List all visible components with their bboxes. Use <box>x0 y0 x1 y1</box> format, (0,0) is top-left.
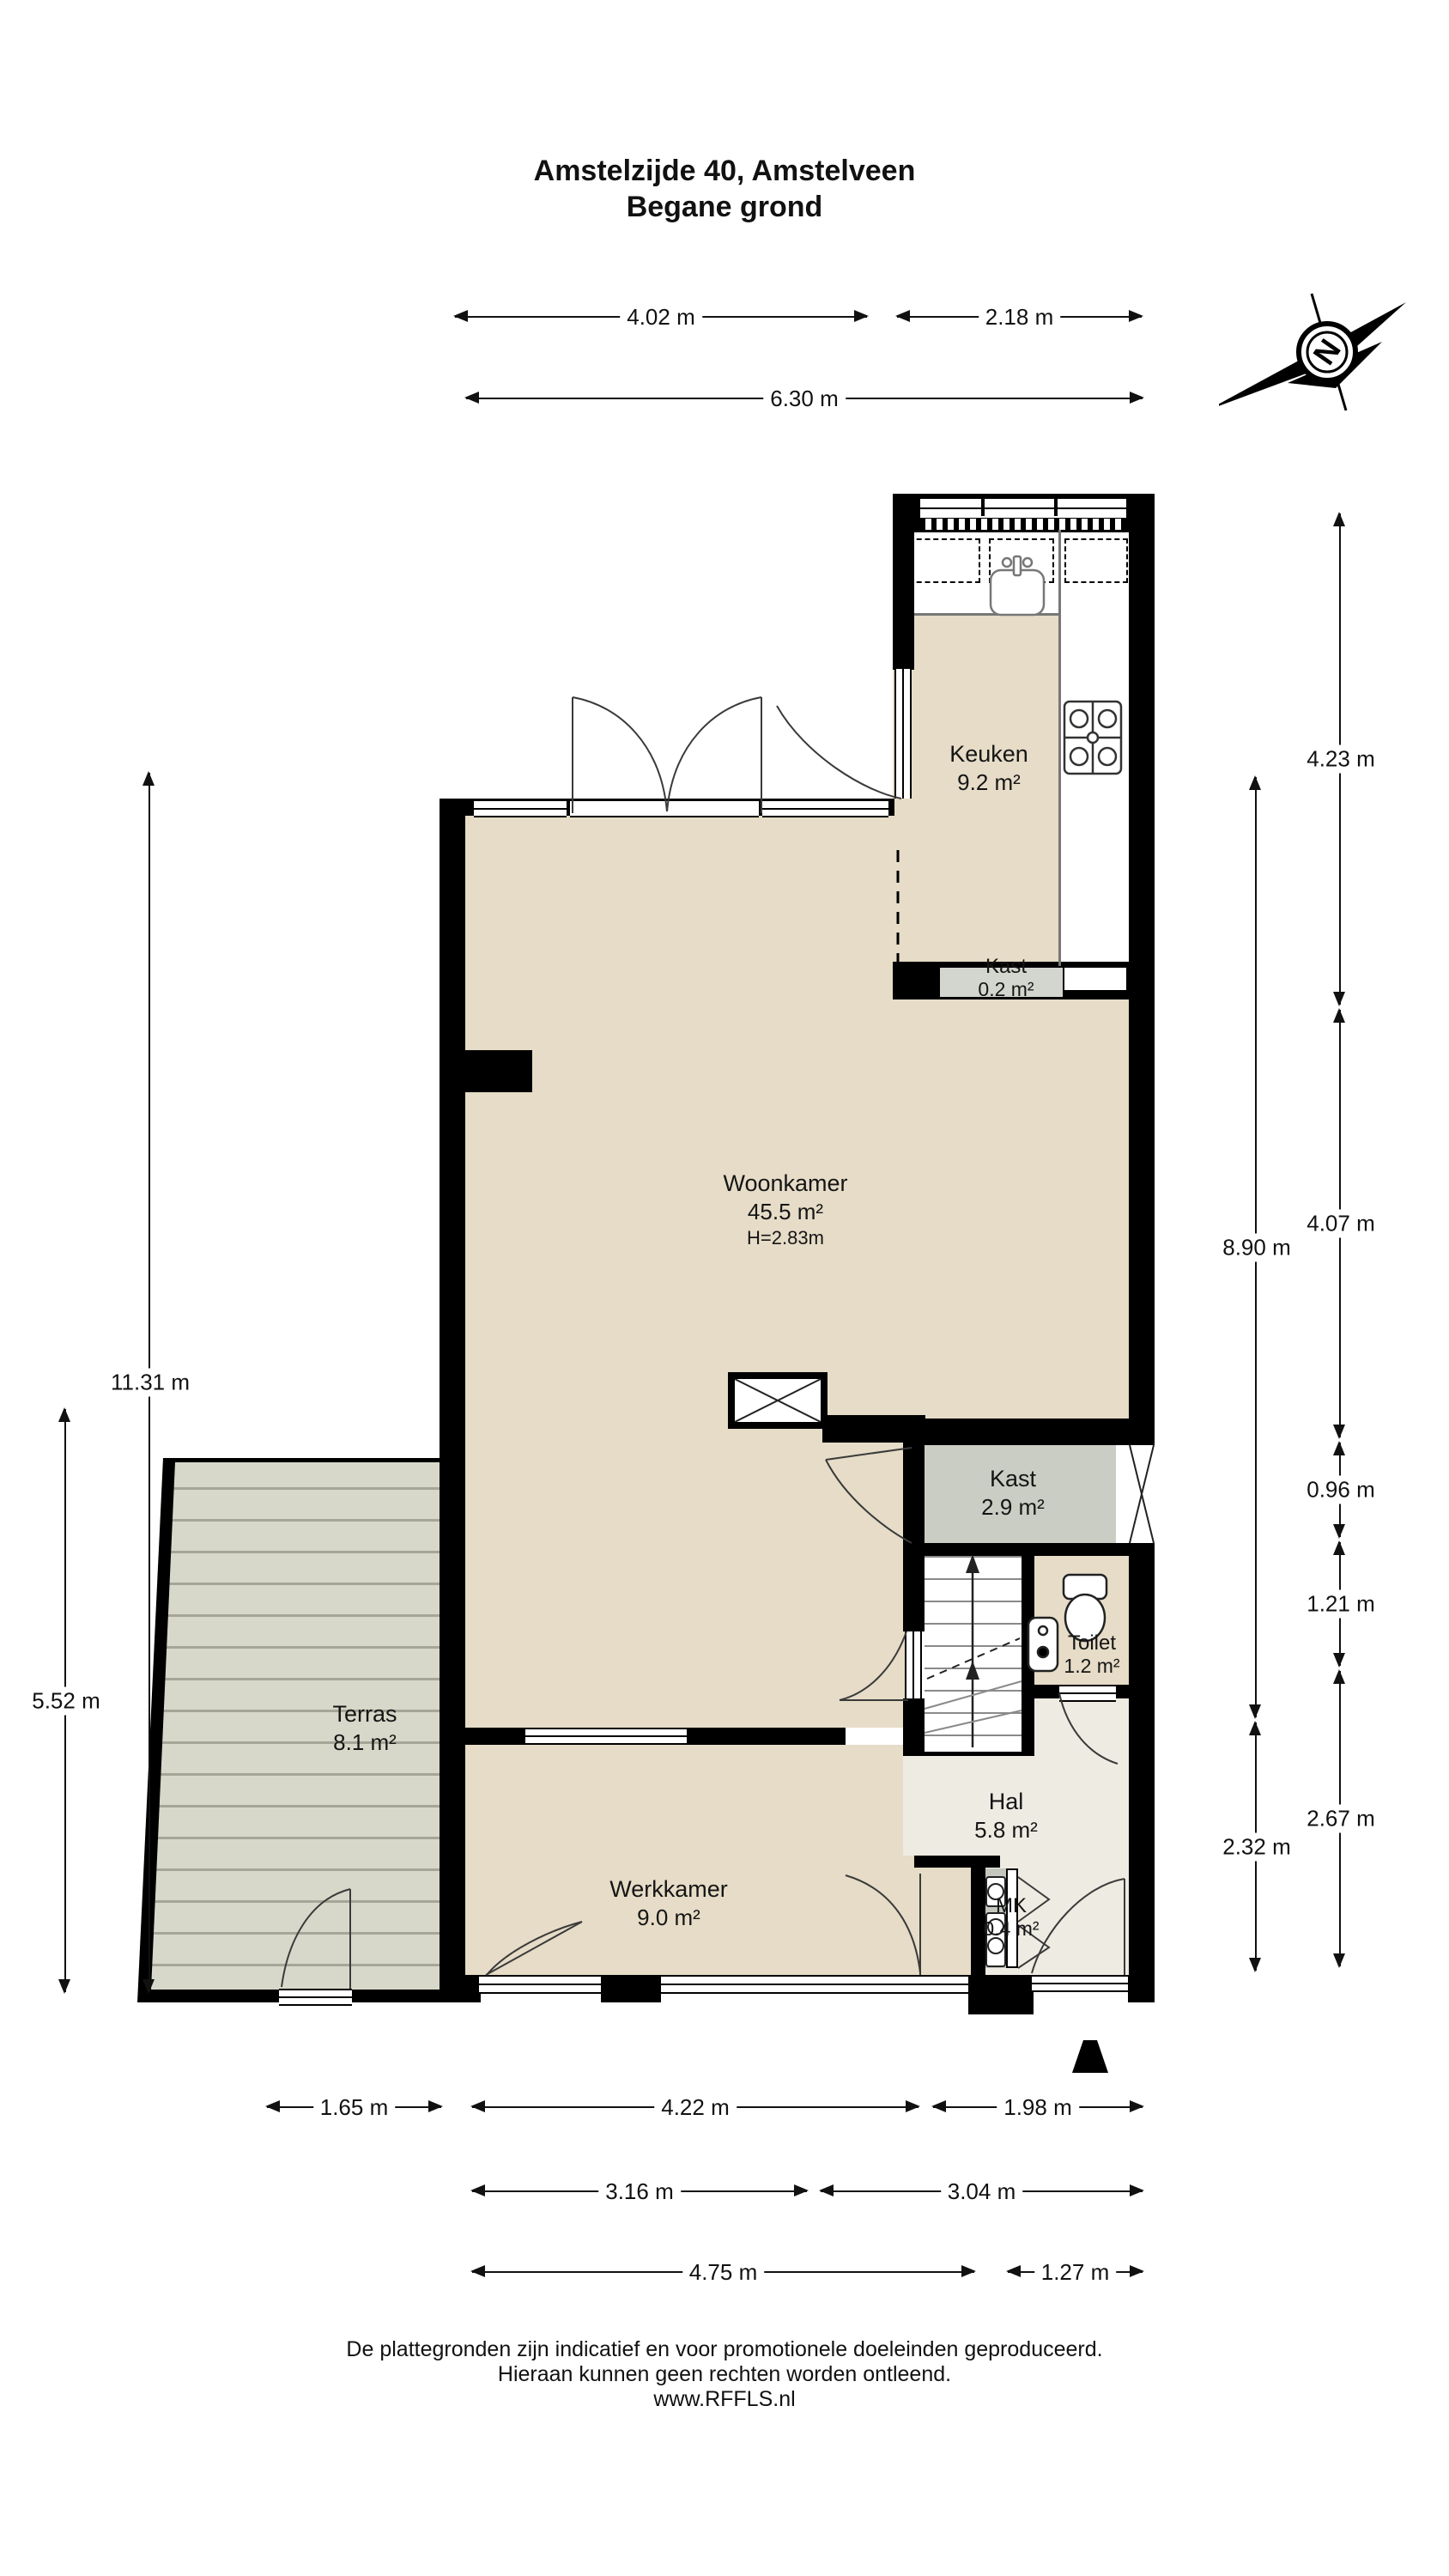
wall-kast-bottom <box>903 1543 1155 1556</box>
terras-area: 8.1 m² <box>332 1728 397 1757</box>
werkkamer-interior-window <box>525 1728 687 1745</box>
kast-name: Kast <box>981 1465 1045 1493</box>
wall-stairs-left-lower <box>903 1698 925 1756</box>
wall-toilet-bottom-left <box>1022 1685 1059 1698</box>
disclaimer-website: www.RFFLS.nl <box>0 2387 1449 2412</box>
compass: N <box>1219 275 1425 438</box>
wall-bottom-pier <box>601 1975 661 2002</box>
title-address: Amstelzijde 40, Amstelveen <box>0 153 1449 189</box>
staircase <box>925 1556 1022 1753</box>
kitchen-top-window <box>920 497 1126 519</box>
dim-right-0-96: 0.96 m <box>1339 1443 1341 1537</box>
dim-right-1-21: 1.21 m <box>1339 1542 1341 1666</box>
wall-left <box>440 799 465 2002</box>
keuken-name: Keuken <box>949 740 1028 769</box>
disclaimer-line-1: De plattegronden zijn indicatief en voor… <box>0 2337 1449 2362</box>
counter-right-edge <box>1058 530 1061 966</box>
stairs-bottom-edge <box>925 1752 1022 1756</box>
wall-stairs-left-upper <box>903 1443 925 1631</box>
upper-cabinet-3 <box>1064 538 1128 583</box>
floor-woonkamer-left <box>465 813 893 1728</box>
page-title: Amstelzijde 40, Amstelveen Begane grond <box>0 153 1449 225</box>
stove-icon <box>1064 702 1121 774</box>
dim-bottom-4-75: 4.75 m <box>472 2271 974 2273</box>
kast-klein-area: 0.2 m² <box>978 978 1034 1001</box>
mk-area: 0.4 m² <box>983 1917 1039 1941</box>
room-label-woonkamer: Woonkamer 45.5 m² H=2.83m <box>723 1170 847 1250</box>
dim-bottom-1-27: 1.27 m <box>1008 2271 1143 2273</box>
dim-left-11-31: 11.31 m <box>149 773 150 1992</box>
dim-bottom-4-22: 4.22 m <box>472 2106 919 2108</box>
floorplan-sheet: Amstelzijde 40, Amstelveen Begane grond <box>0 0 1449 2576</box>
floor-hal-toilet-front <box>1034 1698 1129 1756</box>
room-label-toilet: Toilet 1.2 m² <box>1064 1631 1119 1678</box>
kitchen-window-mullion-2 <box>1054 497 1058 516</box>
wall-bottom-right-corner <box>1128 1975 1155 2002</box>
duct-glass <box>735 1379 821 1422</box>
floor-werkkamer <box>465 1745 971 1975</box>
upper-cabinet-1 <box>908 538 980 583</box>
room-label-hal: Hal 5.8 m² <box>974 1788 1038 1844</box>
entrance-marker <box>1072 2040 1108 2073</box>
upper-cabinet-2 <box>989 538 1054 583</box>
dim-right-4-23: 4.23 m <box>1339 513 1341 1005</box>
dim-left-5-52: 5.52 m <box>64 1409 66 1992</box>
dim-bottom-1-98: 1.98 m <box>933 2106 1143 2108</box>
dim-top-6-30: 6.30 m <box>466 398 1143 399</box>
counter-front-edge <box>914 613 1060 616</box>
wall-werkkamer-top-right <box>687 1728 846 1745</box>
hal-name: Hal <box>974 1788 1038 1816</box>
room-label-mk: MK 0.4 m² <box>983 1894 1039 1941</box>
hal-area: 5.8 m² <box>974 1816 1038 1844</box>
wall-frontdoor-block <box>968 1975 1034 2014</box>
french-doors <box>573 697 761 813</box>
dim-right-8-90: 8.90 m <box>1255 777 1257 1717</box>
room-label-terras: Terras 8.1 m² <box>332 1700 397 1757</box>
floor-hal-under-stairs <box>903 1756 985 1856</box>
dim-top-4-02: 4.02 m <box>455 316 867 318</box>
woonkamer-name: Woonkamer <box>723 1170 847 1198</box>
title-floor: Begane grond <box>0 189 1449 225</box>
room-label-kast-klein: Kast 0.2 m² <box>978 955 1034 1001</box>
terras-name: Terras <box>332 1700 397 1728</box>
floor-woonkamer-right <box>893 999 1129 1419</box>
werkkamer-window-left <box>479 1975 601 1994</box>
compass-needle <box>1219 294 1406 410</box>
disclaimer-line-2: Hieraan kunnen geen rechten worden ontle… <box>0 2362 1449 2387</box>
wall-bottom-left-corner <box>440 1975 481 2002</box>
mk-name: MK <box>983 1894 1039 1917</box>
dim-bottom-3-16: 3.16 m <box>472 2190 807 2192</box>
wall-werkkamer-top-left <box>465 1728 525 1745</box>
woonkamer-height: H=2.83m <box>723 1226 847 1250</box>
kast-area: 2.9 m² <box>981 1493 1045 1522</box>
dim-bottom-3-04: 3.04 m <box>821 2190 1143 2192</box>
dim-bottom-1-65: 1.65 m <box>267 2106 441 2108</box>
woonkamer-top-window-right <box>762 799 888 817</box>
disclaimer: De plattegronden zijn indicatief en voor… <box>0 2337 1449 2412</box>
kitchen-sill-hatch <box>920 519 1126 530</box>
kast-window-glass <box>1129 1445 1155 1543</box>
dim-right-2-32: 2.32 m <box>1255 1722 1257 1971</box>
kitchen-window-mullion-1 <box>981 497 985 516</box>
woonkamer-area: 45.5 m² <box>723 1198 847 1226</box>
wall-right-lower <box>1129 1543 1155 2002</box>
chimney <box>440 1050 532 1092</box>
woonkamer-top-window-left <box>474 799 567 817</box>
toilet-door-threshold <box>1059 1685 1116 1702</box>
toilet-area: 1.2 m² <box>1064 1655 1119 1678</box>
dim-right-2-67: 2.67 m <box>1339 1671 1341 1966</box>
woonkamer-french-door-opening <box>570 799 759 817</box>
front-door-threshold <box>1032 1975 1128 1992</box>
wall-kast-top <box>903 1419 1155 1445</box>
toilet-name: Toilet <box>1064 1631 1119 1655</box>
keuken-area: 9.2 m² <box>949 769 1028 797</box>
werkkamer-name: Werkkamer <box>609 1875 728 1904</box>
compass-letter: N <box>1306 332 1347 371</box>
kitchen-side-door-swing <box>777 706 901 799</box>
room-label-kast: Kast 2.9 m² <box>981 1465 1045 1522</box>
room-label-keuken: Keuken 9.2 m² <box>949 740 1028 797</box>
kast-klein-name: Kast <box>978 955 1034 978</box>
terras-gate <box>279 1989 352 2006</box>
wall-toilet-bottom-right <box>1116 1685 1129 1698</box>
dim-right-4-07: 4.07 m <box>1339 1010 1341 1437</box>
room-label-werkkamer: Werkkamer 9.0 m² <box>609 1875 728 1932</box>
woonkamer-hal-door-strip <box>905 1631 922 1698</box>
dim-top-2-18: 2.18 m <box>897 316 1142 318</box>
werkkamer-window-right <box>661 1975 968 1994</box>
kitchen-side-door-glass <box>894 669 912 799</box>
kast-klein-sill <box>1064 968 1126 990</box>
werkkamer-area: 9.0 m² <box>609 1904 728 1932</box>
wall-stairs-right <box>1022 1556 1034 1756</box>
wall-mk-top <box>914 1856 1000 1868</box>
